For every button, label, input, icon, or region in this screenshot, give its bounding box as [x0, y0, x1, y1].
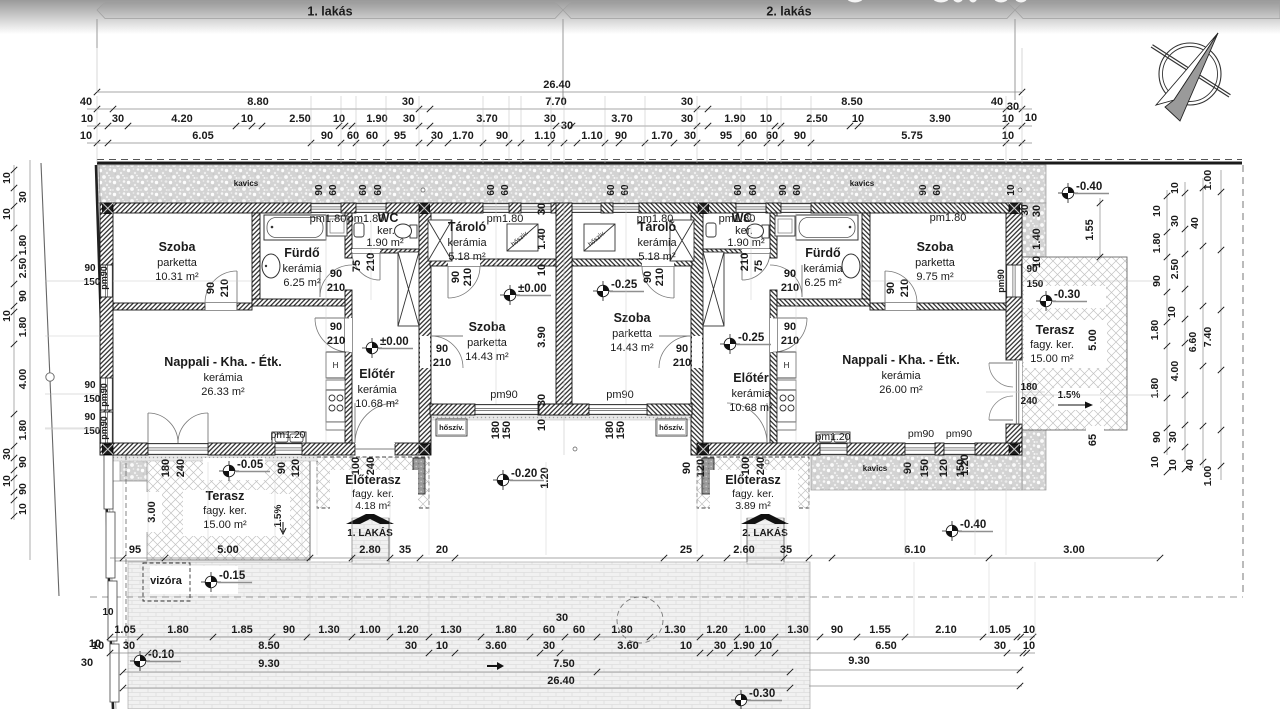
- svg-text:Fürdő: Fürdő: [284, 246, 320, 260]
- svg-text:1.80: 1.80: [17, 420, 29, 441]
- svg-text:210: 210: [327, 335, 345, 347]
- svg-text:30: 30: [561, 120, 573, 132]
- svg-text:15.00 m²: 15.00 m²: [203, 519, 247, 531]
- svg-text:1.90 m²: 1.90 m²: [366, 237, 404, 249]
- svg-text:60: 60: [573, 624, 585, 636]
- svg-text:pm1.20: pm1.20: [270, 429, 305, 441]
- svg-text:5.18 m²: 5.18 m²: [448, 251, 486, 263]
- svg-text:pm90: pm90: [99, 266, 109, 290]
- svg-text:75: 75: [351, 260, 363, 272]
- svg-text:kerámia: kerámia: [881, 370, 921, 382]
- svg-text:pm90: pm90: [908, 428, 934, 440]
- svg-text:90: 90: [17, 456, 29, 468]
- svg-text:25: 25: [680, 544, 692, 556]
- svg-text:2.80: 2.80: [359, 544, 380, 556]
- svg-text:4.00: 4.00: [17, 369, 29, 390]
- svg-text:60: 60: [733, 184, 744, 196]
- svg-text:40: 40: [1184, 459, 1196, 471]
- svg-text:60: 60: [932, 184, 943, 196]
- svg-text:Terasz: Terasz: [1036, 323, 1075, 337]
- svg-text:5.00: 5.00: [1087, 329, 1099, 350]
- svg-text:3.90: 3.90: [929, 113, 950, 125]
- svg-text:30: 30: [1167, 431, 1179, 443]
- svg-text:1.80: 1.80: [611, 624, 632, 636]
- svg-text:Előterasz: Előterasz: [725, 473, 781, 487]
- svg-text:30: 30: [994, 640, 1006, 652]
- svg-text:10: 10: [81, 113, 93, 125]
- svg-text:Előtér: Előtér: [733, 371, 769, 385]
- svg-text:60: 60: [328, 184, 339, 196]
- svg-text:kerámia: kerámia: [203, 372, 243, 384]
- svg-text:pm90: pm90: [490, 389, 518, 401]
- svg-text:210: 210: [781, 335, 799, 347]
- svg-text:210: 210: [327, 282, 345, 294]
- svg-text:10: 10: [760, 113, 772, 125]
- svg-text:90: 90: [784, 268, 796, 280]
- svg-text:30: 30: [1, 448, 13, 460]
- svg-text:kerámia: kerámia: [357, 384, 397, 396]
- svg-text:parketta: parketta: [157, 257, 198, 269]
- svg-text:90: 90: [1151, 431, 1163, 443]
- svg-text:210: 210: [654, 268, 666, 286]
- svg-text:210: 210: [219, 279, 231, 297]
- svg-text:2.60: 2.60: [733, 544, 754, 556]
- svg-text:1.90: 1.90: [366, 113, 387, 125]
- svg-text:90: 90: [784, 321, 796, 333]
- svg-text:90: 90: [450, 271, 462, 283]
- svg-text:210: 210: [673, 357, 691, 369]
- svg-text:H: H: [333, 361, 339, 370]
- svg-text:30: 30: [17, 191, 29, 203]
- svg-text:6.10: 6.10: [904, 544, 925, 556]
- svg-text:60: 60: [745, 130, 757, 142]
- svg-text:7.40: 7.40: [1202, 327, 1214, 348]
- svg-text:8.80: 8.80: [247, 96, 268, 108]
- svg-text:1.10: 1.10: [581, 130, 602, 142]
- svg-text:90: 90: [205, 282, 217, 294]
- svg-text:90: 90: [885, 282, 897, 294]
- svg-text:3.70: 3.70: [476, 113, 497, 125]
- svg-text:40: 40: [1189, 217, 1201, 229]
- svg-text:1.90 m²: 1.90 m²: [727, 237, 765, 249]
- svg-text:H: H: [784, 361, 790, 370]
- svg-text:2.50: 2.50: [289, 113, 310, 125]
- svg-text:90: 90: [902, 462, 914, 474]
- svg-text:2. LAKÁS: 2. LAKÁS: [742, 526, 788, 539]
- svg-text:90: 90: [17, 483, 29, 495]
- svg-text:pm1.80: pm1.80: [719, 213, 756, 225]
- svg-text:5.00: 5.00: [217, 544, 238, 556]
- svg-text:10: 10: [1166, 306, 1178, 318]
- svg-text:1.00: 1.00: [1202, 466, 1214, 487]
- svg-text:1.80: 1.80: [1149, 320, 1161, 341]
- svg-text:150: 150: [84, 426, 101, 437]
- svg-text:1.00: 1.00: [359, 624, 380, 636]
- svg-text:-0.30: -0.30: [749, 688, 775, 700]
- svg-text:vizóra: vizóra: [150, 575, 183, 587]
- svg-text:10: 10: [760, 640, 772, 652]
- svg-text:180: 180: [1021, 382, 1038, 393]
- svg-text:90: 90: [84, 380, 96, 391]
- svg-text:1.70: 1.70: [452, 130, 473, 142]
- svg-text:Szoba: Szoba: [614, 311, 652, 325]
- svg-text:10: 10: [102, 607, 114, 618]
- svg-text:fagy. ker.: fagy. ker.: [352, 488, 394, 500]
- svg-text:2.10: 2.10: [935, 624, 956, 636]
- svg-text:1.70: 1.70: [651, 130, 672, 142]
- svg-text:30: 30: [402, 96, 414, 108]
- svg-text:-0.40: -0.40: [960, 519, 986, 531]
- svg-text:parketta: parketta: [612, 328, 653, 340]
- svg-text:pm1.80: pm1.80: [487, 213, 524, 225]
- svg-text:10.68 m²: 10.68 m²: [355, 398, 399, 410]
- svg-text:150: 150: [1027, 279, 1044, 290]
- svg-text:30: 30: [536, 394, 548, 406]
- svg-text:150: 150: [84, 394, 101, 405]
- svg-text:kerámia: kerámia: [803, 263, 843, 275]
- svg-text:10: 10: [536, 264, 548, 276]
- svg-text:1.20: 1.20: [397, 624, 418, 636]
- svg-text:30: 30: [1020, 204, 1031, 216]
- svg-text:30: 30: [681, 113, 693, 125]
- svg-text:parketta: parketta: [915, 257, 956, 269]
- svg-text:kerámia: kerámia: [637, 237, 677, 249]
- svg-text:1.90: 1.90: [733, 640, 754, 652]
- svg-text:240: 240: [365, 457, 377, 475]
- svg-text:pm1.80: pm1.80: [930, 212, 967, 224]
- svg-text:60: 60: [358, 184, 369, 196]
- svg-text:60: 60: [543, 624, 555, 636]
- svg-text:Fürdő: Fürdő: [805, 246, 841, 260]
- svg-text:90: 90: [496, 130, 508, 142]
- svg-text:30: 30: [123, 640, 135, 652]
- svg-text:2.50: 2.50: [17, 258, 29, 279]
- svg-text:210: 210: [781, 282, 799, 294]
- svg-text:Szoba: Szoba: [917, 240, 955, 254]
- svg-text:9.30: 9.30: [848, 655, 869, 667]
- svg-text:180: 180: [160, 459, 172, 477]
- svg-text:6.50: 6.50: [875, 640, 896, 652]
- svg-text:4.00: 4.00: [1169, 361, 1181, 382]
- svg-text:1.00: 1.00: [744, 624, 765, 636]
- svg-text:30: 30: [405, 640, 417, 652]
- svg-text:10: 10: [333, 113, 345, 125]
- svg-text:-0.40: -0.40: [1076, 181, 1102, 193]
- svg-text:15.00 m²: 15.00 m²: [1030, 353, 1074, 365]
- svg-text:60: 60: [792, 184, 803, 196]
- svg-text:90: 90: [330, 321, 342, 333]
- svg-text:pm1.20: pm1.20: [815, 431, 850, 443]
- svg-text:4.20: 4.20: [171, 113, 192, 125]
- svg-text:±0.00: ±0.00: [380, 336, 409, 348]
- svg-text:kerámia: kerámia: [282, 263, 322, 275]
- svg-text:10: 10: [852, 113, 864, 125]
- svg-text:90: 90: [84, 412, 96, 423]
- svg-text:60: 60: [748, 184, 759, 196]
- svg-text:-0.30: -0.30: [1054, 289, 1080, 301]
- svg-text:±0.00: ±0.00: [518, 283, 547, 295]
- svg-text:Szoba: Szoba: [469, 320, 507, 334]
- svg-text:Szoba: Szoba: [159, 240, 197, 254]
- svg-text:1.40: 1.40: [536, 228, 548, 249]
- svg-text:10: 10: [80, 130, 92, 142]
- svg-text:60: 60: [373, 184, 384, 196]
- svg-text:hőszív.: hőszív.: [439, 423, 464, 432]
- svg-text:30: 30: [1031, 205, 1043, 217]
- svg-text:60: 60: [766, 130, 778, 142]
- svg-text:1.10: 1.10: [534, 130, 555, 142]
- svg-text:pm90: pm90: [606, 389, 634, 401]
- svg-text:100: 100: [740, 457, 752, 475]
- svg-text:30: 30: [81, 657, 93, 669]
- svg-text:10: 10: [1002, 113, 1014, 125]
- svg-text:60: 60: [486, 184, 497, 196]
- svg-text:30: 30: [681, 96, 693, 108]
- svg-text:1.30: 1.30: [787, 624, 808, 636]
- svg-text:1.30: 1.30: [664, 624, 685, 636]
- svg-text:90: 90: [436, 343, 448, 355]
- svg-text:30: 30: [1007, 101, 1019, 113]
- svg-text:30: 30: [684, 130, 696, 142]
- svg-text:40: 40: [80, 96, 92, 108]
- svg-text:8.50: 8.50: [841, 96, 862, 108]
- svg-text:1.85: 1.85: [231, 624, 252, 636]
- svg-text:240: 240: [1021, 396, 1038, 407]
- svg-text:6.25 m²: 6.25 m²: [804, 277, 842, 289]
- svg-text:-0.25: -0.25: [611, 279, 638, 291]
- svg-text:1.80: 1.80: [17, 317, 29, 338]
- svg-text:9.30: 9.30: [258, 658, 279, 670]
- svg-text:60: 60: [500, 184, 511, 196]
- svg-text:fagy. ker.: fagy. ker.: [203, 505, 247, 517]
- svg-text:5.75: 5.75: [901, 130, 922, 142]
- svg-text:1.05: 1.05: [114, 624, 135, 636]
- svg-text:60: 60: [620, 184, 631, 196]
- svg-text:90: 90: [676, 343, 688, 355]
- svg-text:10: 10: [1151, 205, 1163, 217]
- svg-text:95: 95: [720, 130, 732, 142]
- svg-text:26.33 m²: 26.33 m²: [201, 386, 245, 398]
- svg-text:75: 75: [753, 260, 765, 272]
- svg-text:240: 240: [755, 457, 767, 475]
- svg-text:10: 10: [241, 113, 253, 125]
- svg-text:Előtér: Előtér: [359, 367, 395, 381]
- svg-text:10: 10: [1025, 112, 1037, 124]
- svg-text:210: 210: [899, 279, 911, 297]
- svg-text:6.05: 6.05: [192, 130, 213, 142]
- svg-text:95: 95: [129, 544, 141, 556]
- svg-text:1.80: 1.80: [1151, 233, 1163, 254]
- svg-text:10.68 m²: 10.68 m²: [729, 402, 773, 414]
- svg-text:1.20: 1.20: [539, 467, 551, 488]
- svg-text:3.89 m²: 3.89 m²: [735, 500, 771, 512]
- svg-text:5.18 m²: 5.18 m²: [638, 251, 676, 263]
- svg-text:1.05: 1.05: [989, 624, 1010, 636]
- svg-text:1.5%: 1.5%: [273, 504, 284, 527]
- svg-text:fagy. ker.: fagy. ker.: [1030, 339, 1074, 351]
- svg-text:30: 30: [544, 113, 556, 125]
- svg-text:60: 60: [366, 130, 378, 142]
- svg-text:2.50: 2.50: [806, 113, 827, 125]
- svg-text:90: 90: [276, 462, 288, 474]
- svg-text:150: 150: [84, 277, 101, 288]
- svg-text:pm1.80: pm1.80: [310, 213, 347, 225]
- svg-text:30: 30: [714, 640, 726, 652]
- svg-text:pm90: pm90: [99, 416, 109, 440]
- svg-text:3.00: 3.00: [1063, 544, 1084, 556]
- svg-text:40: 40: [991, 96, 1003, 108]
- svg-text:10: 10: [1, 208, 13, 220]
- svg-text:pm90: pm90: [99, 383, 109, 407]
- svg-text:65: 65: [1087, 434, 1099, 446]
- svg-text:-0.10: -0.10: [148, 649, 174, 661]
- svg-text:240: 240: [175, 459, 187, 477]
- svg-text:95: 95: [394, 130, 406, 142]
- svg-text:3.70: 3.70: [611, 113, 632, 125]
- svg-text:14.43 m²: 14.43 m²: [610, 342, 654, 354]
- svg-text:90: 90: [615, 130, 627, 142]
- svg-text:3.60: 3.60: [485, 640, 506, 652]
- svg-text:1.55: 1.55: [1084, 219, 1096, 240]
- svg-text:60: 60: [606, 184, 617, 196]
- svg-text:30: 30: [403, 113, 415, 125]
- svg-text:Terasz: Terasz: [206, 489, 245, 503]
- svg-text:6.25 m²: 6.25 m²: [283, 277, 321, 289]
- svg-text:30: 30: [556, 612, 568, 624]
- svg-text:1.20: 1.20: [706, 624, 727, 636]
- svg-text:3.90: 3.90: [536, 326, 548, 347]
- svg-text:210: 210: [433, 357, 451, 369]
- svg-text:10: 10: [17, 503, 29, 515]
- svg-text:1.90: 1.90: [724, 113, 745, 125]
- svg-text:10: 10: [1149, 456, 1161, 468]
- svg-text:150: 150: [615, 421, 627, 439]
- svg-text:90: 90: [831, 624, 843, 636]
- svg-text:90: 90: [681, 462, 693, 474]
- svg-text:4.18 m²: 4.18 m²: [355, 500, 391, 512]
- svg-text:150: 150: [919, 459, 931, 477]
- svg-text:35: 35: [399, 544, 411, 556]
- svg-text:90: 90: [778, 184, 789, 196]
- svg-text:150: 150: [501, 421, 513, 439]
- svg-text:26.40: 26.40: [547, 675, 575, 687]
- svg-text:3.60: 3.60: [617, 640, 638, 652]
- svg-text:1.20: 1.20: [959, 454, 971, 475]
- svg-text:ker.: ker.: [377, 225, 395, 237]
- svg-text:90: 90: [1026, 264, 1038, 275]
- svg-text:90: 90: [283, 624, 295, 636]
- svg-text:7.70: 7.70: [545, 96, 566, 108]
- svg-text:14.43 m²: 14.43 m²: [465, 351, 509, 363]
- svg-text:pm1.80: pm1.80: [637, 213, 674, 225]
- svg-text:30: 30: [536, 203, 548, 215]
- svg-text:10: 10: [1, 172, 13, 184]
- svg-text:20: 20: [436, 544, 448, 556]
- svg-text:1.5%: 1.5%: [1058, 390, 1081, 401]
- svg-text:30: 30: [1169, 215, 1181, 227]
- svg-text:kerámia: kerámia: [731, 388, 771, 400]
- svg-text:1.55: 1.55: [869, 624, 890, 636]
- svg-text:-0.05: -0.05: [237, 459, 264, 471]
- svg-text:WC: WC: [378, 211, 399, 225]
- svg-text:26.00 m²: 26.00 m²: [879, 384, 923, 396]
- svg-text:1. lakás: 1. lakás: [307, 5, 352, 19]
- svg-text:1.80: 1.80: [17, 235, 29, 256]
- svg-text:kavics: kavics: [850, 179, 875, 188]
- svg-text:-0.25: -0.25: [738, 332, 765, 344]
- svg-text:30: 30: [543, 640, 555, 652]
- svg-text:10: 10: [1023, 624, 1035, 636]
- svg-text:kavics: kavics: [863, 464, 888, 473]
- svg-text:10: 10: [436, 640, 448, 652]
- svg-text:1.30: 1.30: [318, 624, 339, 636]
- svg-text:210: 210: [739, 253, 751, 271]
- svg-text:kerámia: kerámia: [447, 237, 487, 249]
- svg-text:8.50: 8.50: [258, 640, 279, 652]
- svg-text:kavics: kavics: [234, 179, 259, 188]
- svg-text:30: 30: [112, 113, 124, 125]
- svg-text:210: 210: [462, 268, 474, 286]
- svg-text:90: 90: [321, 130, 333, 142]
- svg-text:-0.20: -0.20: [511, 468, 537, 480]
- svg-text:1.30: 1.30: [440, 624, 461, 636]
- svg-text:2.50: 2.50: [1169, 259, 1181, 280]
- svg-text:10: 10: [1, 310, 13, 322]
- svg-text:90: 90: [314, 184, 325, 196]
- svg-text:10: 10: [1002, 130, 1014, 142]
- svg-text:2. lakás: 2. lakás: [766, 5, 811, 19]
- svg-text:1.40: 1.40: [1031, 228, 1043, 249]
- svg-text:-0.15: -0.15: [219, 570, 246, 582]
- svg-text:90: 90: [642, 271, 654, 283]
- svg-text:1.80: 1.80: [167, 624, 188, 636]
- svg-text:Nappali - Kha. - Étk.: Nappali - Kha. - Étk.: [164, 354, 281, 369]
- svg-text:90: 90: [918, 184, 929, 196]
- svg-text:60: 60: [347, 130, 359, 142]
- svg-text:10: 10: [1169, 182, 1181, 194]
- svg-text:90: 90: [330, 268, 342, 280]
- svg-text:90: 90: [84, 263, 96, 274]
- svg-text:120: 120: [938, 459, 950, 477]
- svg-text:10: 10: [536, 419, 548, 431]
- svg-text:90: 90: [794, 130, 806, 142]
- svg-text:1.80: 1.80: [495, 624, 516, 636]
- svg-text:120: 120: [290, 459, 302, 477]
- svg-text:hőszív.: hőszív.: [659, 423, 684, 432]
- svg-text:6.60: 6.60: [1187, 332, 1199, 353]
- svg-text:Nappali - Kha. - Étk.: Nappali - Kha. - Étk.: [842, 352, 959, 367]
- svg-text:7.50: 7.50: [553, 658, 574, 670]
- svg-text:90: 90: [17, 290, 29, 302]
- svg-text:parketta: parketta: [467, 337, 508, 349]
- svg-text:26.40: 26.40: [543, 79, 571, 91]
- svg-text:ker.: ker.: [735, 225, 753, 237]
- svg-text:10: 10: [1006, 184, 1017, 196]
- svg-text:fagy. ker.: fagy. ker.: [732, 488, 774, 500]
- svg-text:10: 10: [89, 638, 101, 650]
- svg-text:10: 10: [1167, 459, 1179, 471]
- svg-text:Tároló: Tároló: [448, 220, 487, 234]
- svg-text:pm90: pm90: [946, 428, 972, 440]
- svg-text:10: 10: [680, 640, 692, 652]
- svg-text:1. LAKÁS: 1. LAKÁS: [347, 526, 393, 539]
